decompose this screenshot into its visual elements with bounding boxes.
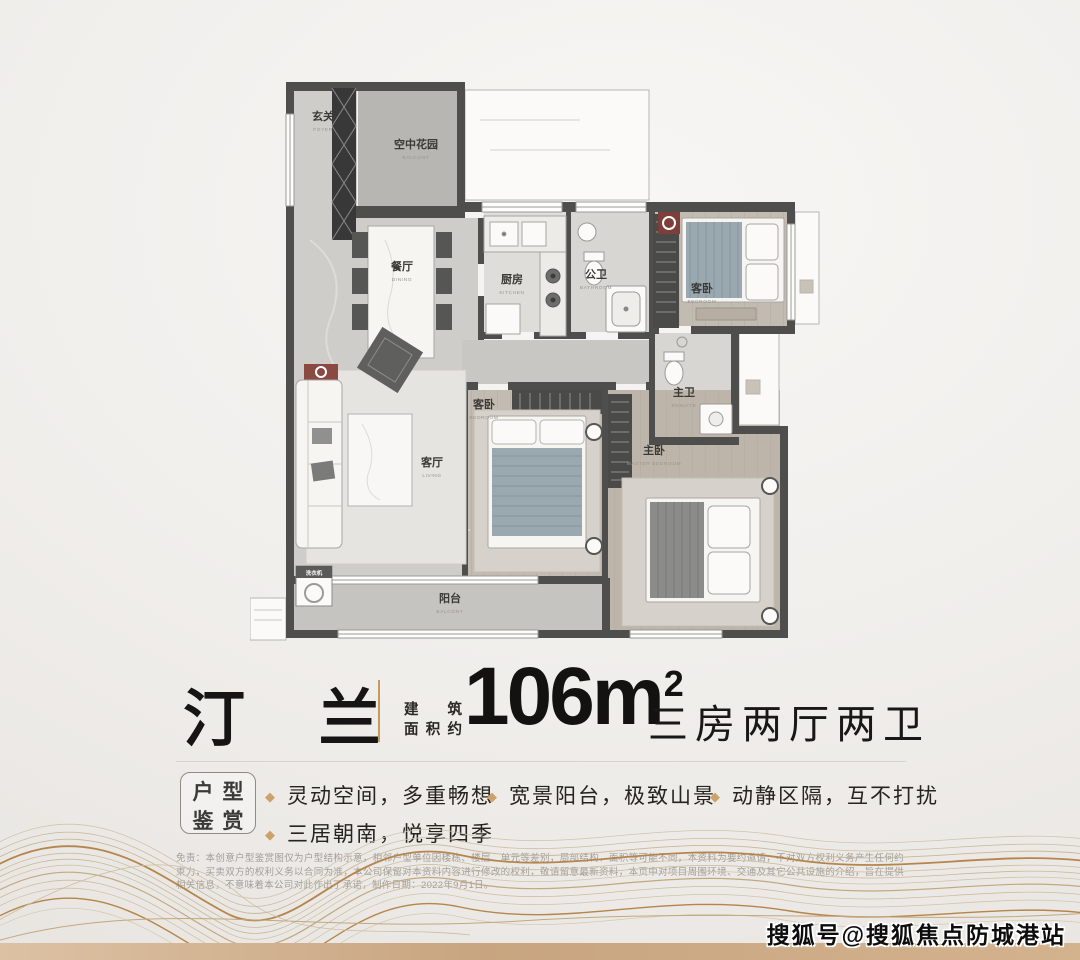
svg-text:BEDROOM: BEDROOM: [470, 415, 499, 421]
bedroom-middle-furniture: [474, 410, 602, 572]
elevator-shaft: [332, 88, 356, 240]
layout-description: 三房两厅两卫: [648, 692, 930, 750]
area-prefix-line2: 面积约: [404, 720, 462, 740]
diamond-bullet-icon: ◆: [710, 789, 722, 804]
area-prefix: 建 筑 面积约: [404, 700, 462, 740]
room-label-ensuite: 主卫: [673, 385, 695, 399]
feature-text: 宽景阳台，极致山景: [509, 785, 716, 808]
washer-label: 洗衣机: [306, 569, 323, 577]
floorplan-diagram: 玄关 FOYER 空中花园 BALCONY 餐厅 DINING 厨房 KITCH…: [250, 80, 834, 654]
svg-text:BEDROOM: BEDROOM: [688, 299, 717, 305]
title-divider-line: [378, 680, 380, 742]
diamond-bullet-icon: ◆: [265, 827, 277, 842]
feature-item: ◆灵动空间，多重畅想: [265, 780, 494, 810]
unit-name: 汀 兰: [183, 668, 407, 758]
svg-text:KITCHEN: KITCHEN: [499, 290, 524, 296]
svg-text:LIVING: LIVING: [422, 473, 441, 479]
watermark-text: 搜狐号@搜狐焦点防城港站: [767, 916, 1066, 950]
appreciation-badge: 户型 鉴赏: [180, 772, 256, 834]
poster-page: 玄关 FOYER 空中花园 BALCONY 餐厅 DINING 厨房 KITCH…: [0, 0, 1080, 960]
svg-text:DINING: DINING: [392, 277, 412, 283]
feature-text: 动静区隔，互不打扰: [732, 785, 939, 808]
svg-text:BATHROOM: BATHROOM: [580, 285, 612, 291]
feature-item: ◆宽景阳台，极致山景: [487, 780, 716, 810]
horizontal-divider: [176, 761, 906, 762]
svg-text:FOYER: FOYER: [313, 127, 333, 133]
feature-item: ◆三居朝南，悦享四季: [265, 818, 494, 848]
svg-text:MASTER BEDROOM: MASTER BEDROOM: [627, 461, 682, 467]
feature-item: ◆动静区隔，互不打扰: [710, 780, 939, 810]
room-label-bedroom-middle: 客卧: [472, 397, 495, 411]
room-label-sky-garden: 空中花园: [394, 137, 438, 151]
area-number: 106m: [464, 651, 662, 742]
room-label-dining: 餐厅: [390, 259, 413, 273]
room-label-master: 主卧: [643, 443, 665, 457]
feature-text: 三居朝南，悦享四季: [287, 823, 494, 846]
badge-line2: 鉴赏: [181, 806, 255, 835]
area-prefix-line1: 建 筑: [404, 700, 462, 720]
master-furniture: [622, 478, 778, 626]
diamond-bullet-icon: ◆: [265, 789, 277, 804]
room-label-guest-bath: 公卫: [585, 268, 607, 281]
svg-text:ENSUITE: ENSUITE: [672, 403, 697, 409]
room-label-foyer: 玄关: [312, 109, 334, 123]
disclaimer-text: 免责：本创意户型鉴赏图仅为户型结构示意，相邻户型单位因楼栋、楼层、单元等差别，局…: [176, 852, 904, 893]
svg-text:BALCONY: BALCONY: [436, 609, 463, 615]
feature-text: 灵动空间，多重畅想: [287, 785, 494, 808]
badge-line1: 户型: [181, 777, 255, 806]
svg-text:BALCONY: BALCONY: [402, 155, 429, 161]
room-label-living: 客厅: [420, 455, 443, 469]
diamond-bullet-icon: ◆: [487, 789, 499, 804]
room-label-bedroom-north: 客卧: [690, 281, 713, 295]
room-label-kitchen: 厨房: [501, 272, 523, 286]
room-label-balcony: 阳台: [439, 591, 461, 605]
